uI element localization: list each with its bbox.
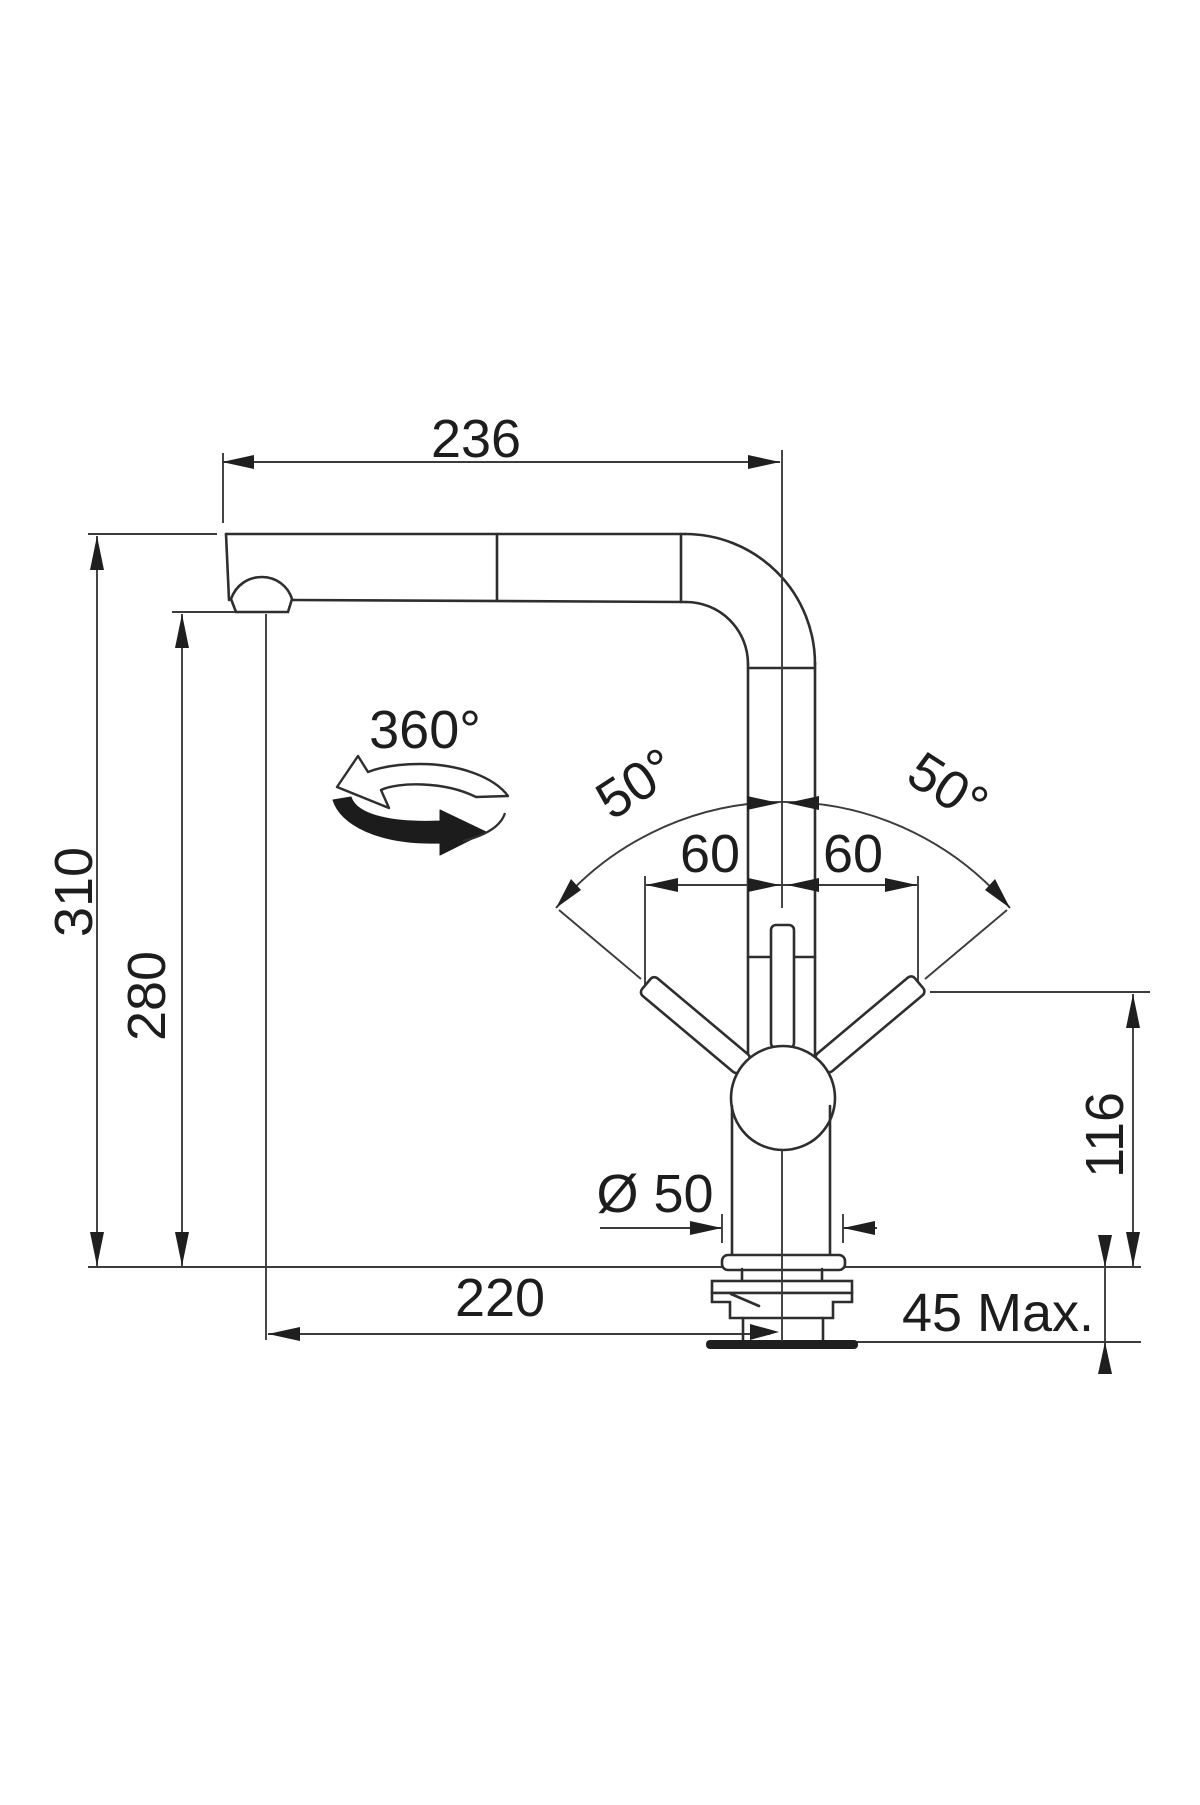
arrowhead xyxy=(750,1324,779,1340)
arrowhead xyxy=(1098,1235,1112,1267)
dim-label-swing-left: 50° xyxy=(586,737,687,832)
ball-joint xyxy=(731,1046,835,1150)
swivel-arrow-top-band xyxy=(337,756,508,808)
arrowhead xyxy=(1126,994,1140,1028)
arrowhead xyxy=(175,1232,189,1266)
arrowhead xyxy=(222,455,254,469)
lever-left-position xyxy=(639,975,752,1075)
elbow-inner-curve xyxy=(686,602,748,664)
dim-label-base-diameter: Ø 50 xyxy=(596,1164,713,1224)
lever-radial-ext-left xyxy=(559,910,641,979)
arrowhead xyxy=(90,536,104,570)
arrowhead xyxy=(268,1327,300,1341)
arrowhead xyxy=(985,879,1010,908)
faucet-dimension-diagram: 236 310 280 360° 50° 50° 60 60 116 Ø 50 … xyxy=(0,0,1200,1800)
dim-label-spout-reach: 236 xyxy=(431,409,521,469)
arrowhead xyxy=(787,878,819,892)
base-flange xyxy=(722,1255,845,1270)
lever-right-position xyxy=(814,974,927,1074)
arrowhead xyxy=(1098,1342,1112,1374)
spout-bottom-edge xyxy=(293,600,686,602)
lever-neutral-position xyxy=(771,925,794,1048)
swivel-symbol xyxy=(333,756,508,855)
dim-label-offset-left: 60 xyxy=(680,824,740,884)
dimension-labels: 236 310 280 360° 50° 50° 60 60 116 Ø 50 … xyxy=(44,409,1135,1343)
arrowhead xyxy=(175,614,189,648)
dim-label-height-total: 310 xyxy=(44,847,104,937)
dim-label-swivel-range: 360° xyxy=(369,700,481,760)
dim-label-swing-right: 50° xyxy=(897,741,998,836)
arrowhead xyxy=(885,878,917,892)
arrowhead xyxy=(646,878,678,892)
aerator-outlet xyxy=(231,577,292,612)
dim-label-outlet-projection: 220 xyxy=(455,1268,545,1328)
arrowhead xyxy=(843,1221,875,1235)
arrowhead xyxy=(1126,1232,1140,1266)
arrowhead xyxy=(556,879,581,908)
faucet-outline xyxy=(226,534,815,1058)
swivel-arrow-bottom-band xyxy=(333,797,486,855)
dim-label-lever-height: 116 xyxy=(1075,1092,1135,1178)
dim-label-offset-right: 60 xyxy=(823,824,883,884)
arrowhead xyxy=(748,878,780,892)
spout-tip-edge xyxy=(226,534,229,600)
technical-drawing-canvas: 236 310 280 360° 50° 50° 60 60 116 Ø 50 … xyxy=(0,0,1200,1805)
faucet-body-group xyxy=(639,925,926,1349)
dim-label-deck-thickness: 45 Max. xyxy=(902,1283,1094,1343)
arrowhead xyxy=(747,796,779,810)
dim-label-height-outlet: 280 xyxy=(117,951,177,1041)
horseshoe-washer xyxy=(706,1340,858,1349)
arrowhead xyxy=(787,796,819,810)
arrowhead xyxy=(90,1232,104,1266)
elbow-outer-curve xyxy=(685,534,815,664)
lever-radial-ext-right xyxy=(925,910,1007,979)
arrowhead xyxy=(748,455,780,469)
